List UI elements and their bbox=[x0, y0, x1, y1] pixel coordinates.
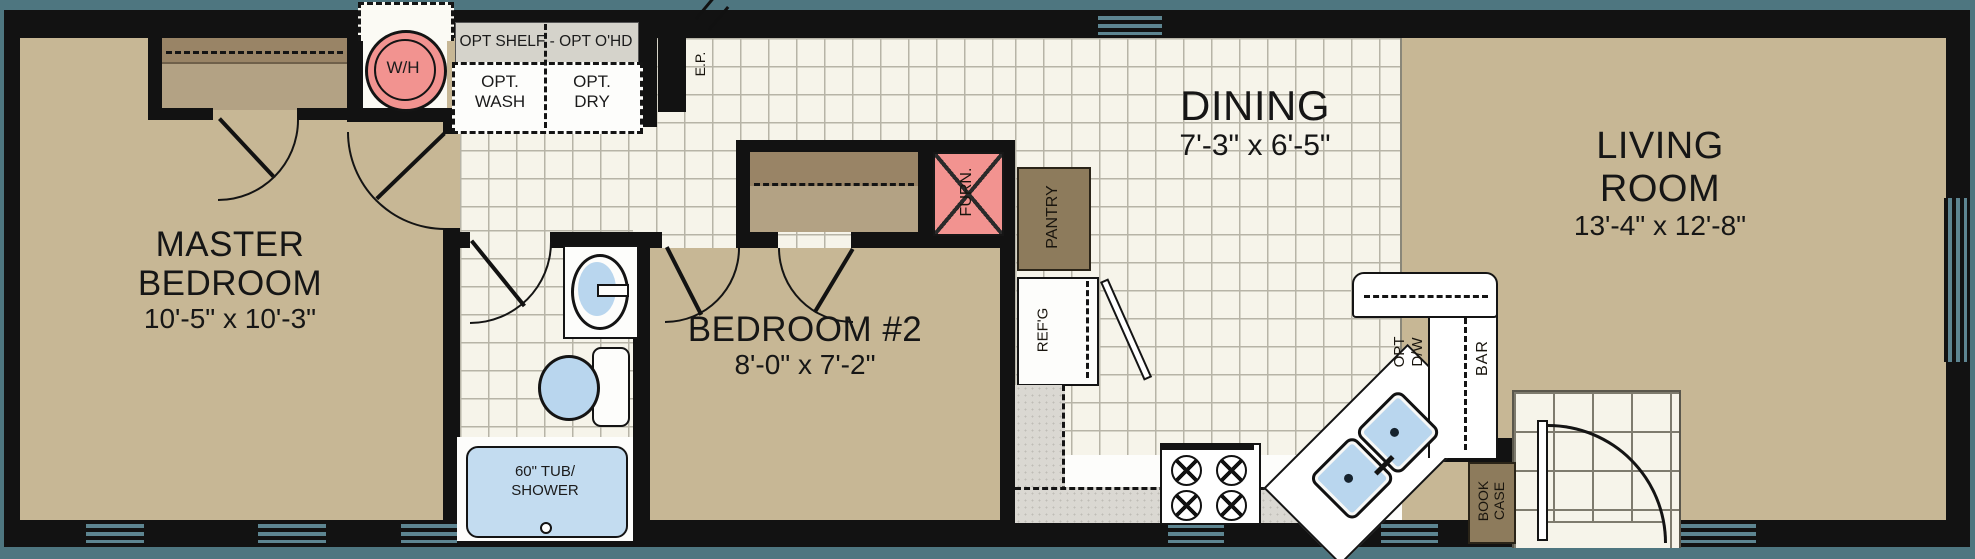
master-closet-floor bbox=[162, 62, 347, 110]
bookcase-label-line1: BOOK bbox=[1475, 481, 1491, 521]
toilet-bowl bbox=[538, 355, 600, 421]
opt-dry-line1: OPT. bbox=[548, 72, 636, 92]
bar-label: BAR bbox=[1474, 340, 1492, 376]
electrical-panel-label: E.P. bbox=[692, 52, 708, 77]
exterior-wall-top bbox=[4, 10, 1966, 38]
bedroom2-name: BEDROOM #2 bbox=[650, 310, 960, 349]
master-bedroom-name-line1: MASTER bbox=[60, 225, 400, 264]
furnace-label: FURN. bbox=[958, 168, 976, 217]
wall bbox=[148, 108, 213, 120]
stove-burner bbox=[1216, 490, 1247, 521]
dishwasher-label-line1: OPT bbox=[1391, 337, 1409, 368]
living-room-dims: 13'-4" x 12'-8" bbox=[1490, 210, 1830, 241]
bookcase-label-line2: CASE bbox=[1491, 481, 1507, 521]
pantry-label: PANTRY bbox=[1044, 185, 1062, 248]
master-bedroom-label: MASTER BEDROOM 10'-5" x 10'-3" bbox=[60, 225, 400, 335]
entry-door-leaf bbox=[1537, 420, 1548, 541]
master-bedroom-dims: 10'-5" x 10'-3" bbox=[60, 303, 400, 334]
master-closet-rod bbox=[166, 51, 343, 54]
dishwasher-label-line2: D/W bbox=[1409, 337, 1427, 368]
opt-wash-line1: OPT. bbox=[455, 72, 545, 92]
opt-wash-line2: WASH bbox=[455, 92, 545, 112]
opt-dry-label: OPT. DRY bbox=[548, 72, 636, 113]
living-room-name-line2: ROOM bbox=[1490, 168, 1830, 211]
window bbox=[258, 520, 326, 547]
exterior-wall-left bbox=[4, 10, 20, 547]
tub-label-line1: 60" TUB/ bbox=[466, 463, 624, 482]
wall bbox=[736, 140, 1015, 152]
wall bbox=[297, 108, 350, 120]
window bbox=[1381, 520, 1438, 547]
bedroom2-label: BEDROOM #2 8'-0" x 7'-2" bbox=[650, 310, 960, 381]
wall bbox=[918, 140, 933, 232]
refrigerator-door-line bbox=[1086, 281, 1089, 378]
refrigerator-label: REF'G bbox=[1035, 308, 1052, 353]
dishwasher-label: OPT D/W bbox=[1391, 337, 1427, 368]
wall bbox=[650, 232, 662, 248]
tub-label: 60" TUB/ SHOWER bbox=[466, 463, 624, 501]
opt-dry-line2: DRY bbox=[548, 92, 636, 112]
window bbox=[86, 520, 144, 547]
bedroom2-closet-floor bbox=[750, 186, 918, 232]
stove-burner bbox=[1171, 490, 1202, 521]
dining-dims: 7'-3" x 6'-5" bbox=[1090, 129, 1420, 163]
opt-wash-label: OPT. WASH bbox=[455, 72, 545, 113]
bathroom-faucet bbox=[597, 284, 629, 297]
bar-overhang-dash-top bbox=[1364, 295, 1488, 298]
bedroom2-closet-rod bbox=[754, 183, 914, 186]
entry-threshold bbox=[1548, 521, 1662, 548]
electrical-panel bbox=[658, 20, 686, 112]
bar-counter-column bbox=[1428, 312, 1498, 458]
living-room-label: LIVING ROOM 13'-4" x 12'-8" bbox=[1490, 125, 1830, 241]
dining-label: DINING 7'-3" x 6'-5" bbox=[1090, 82, 1420, 163]
bookcase-label: BOOK CASE bbox=[1475, 481, 1507, 521]
floor-plan: FURN. W/H OPT SHELF - OPT O'HD OPT. WASH… bbox=[0, 0, 1975, 559]
stove bbox=[1160, 443, 1261, 525]
living-room-name-line1: LIVING bbox=[1490, 125, 1830, 168]
tub-drain bbox=[540, 522, 552, 534]
master-closet-shelf bbox=[162, 38, 347, 62]
window bbox=[1098, 12, 1162, 38]
stove-burner bbox=[1216, 455, 1247, 486]
bar-overhang-dash-side bbox=[1464, 318, 1467, 450]
bedroom2-dims: 8'-0" x 7'-2" bbox=[650, 349, 960, 380]
wall bbox=[736, 140, 750, 248]
wall bbox=[851, 232, 918, 248]
water-heater-label: W/H bbox=[365, 58, 441, 78]
window bbox=[1676, 520, 1756, 547]
tub-label-line2: SHOWER bbox=[466, 482, 624, 501]
stove-burner bbox=[1171, 455, 1202, 486]
window bbox=[401, 520, 457, 547]
wall bbox=[460, 232, 470, 248]
dining-name: DINING bbox=[1090, 82, 1420, 129]
window bbox=[1944, 198, 1968, 362]
master-bedroom-name-line2: BEDROOM bbox=[60, 264, 400, 303]
stove-back-panel bbox=[1162, 445, 1254, 450]
bedroom2-closet-shelf bbox=[750, 152, 918, 186]
